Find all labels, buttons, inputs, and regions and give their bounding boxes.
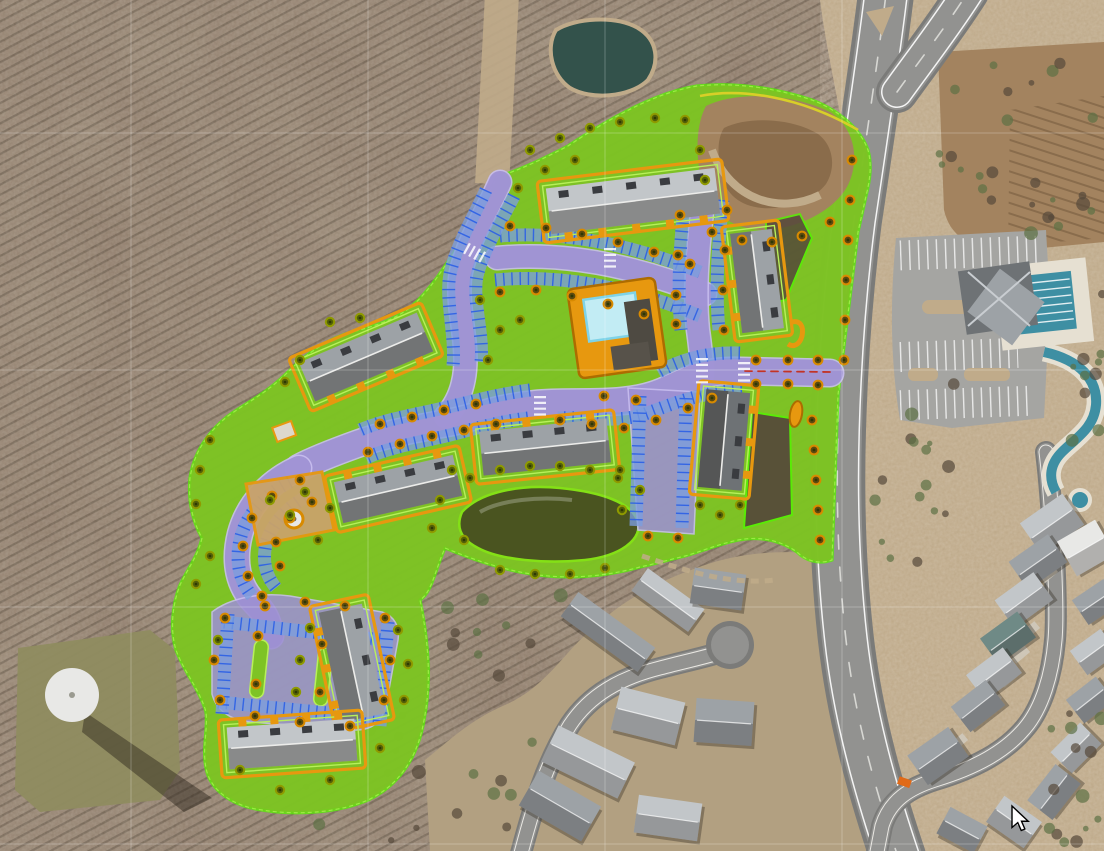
shrub bbox=[931, 507, 938, 514]
shrub bbox=[1029, 80, 1035, 86]
lawn-tree-center bbox=[739, 504, 742, 507]
street-tree-center bbox=[591, 423, 594, 426]
shrub bbox=[939, 161, 946, 168]
shrub bbox=[505, 789, 517, 801]
entry-stoop bbox=[330, 700, 339, 709]
lawn-tree-center bbox=[304, 491, 307, 494]
entry-stoop bbox=[699, 215, 708, 224]
lawn-tree-center bbox=[559, 137, 562, 140]
lawn-tree-center bbox=[469, 477, 472, 480]
shrub bbox=[1070, 364, 1076, 370]
roof-dormer bbox=[592, 186, 603, 194]
lawn-tree-center bbox=[209, 439, 212, 442]
lawn-tree-center bbox=[534, 573, 537, 576]
street-tree-center bbox=[257, 635, 260, 638]
roof-dormer bbox=[737, 403, 745, 414]
street-tree-center bbox=[255, 683, 258, 686]
street-tree-center bbox=[675, 294, 678, 297]
shrub bbox=[527, 738, 536, 747]
lawn-tree-center bbox=[269, 499, 272, 502]
shrub bbox=[493, 669, 505, 681]
street-tree-center bbox=[844, 319, 847, 322]
lawn-tree-center bbox=[617, 477, 620, 480]
lawn-tree-center bbox=[544, 169, 547, 172]
street-tree-center bbox=[655, 419, 658, 422]
street-tree-center bbox=[829, 221, 832, 224]
shrub bbox=[447, 638, 460, 651]
roof-dormer bbox=[770, 307, 778, 318]
shrub bbox=[1088, 113, 1098, 123]
roof-dormer bbox=[490, 434, 501, 442]
street-tree-center bbox=[817, 509, 820, 512]
street-tree-center bbox=[463, 429, 466, 432]
street-tree-center bbox=[431, 435, 434, 438]
entry-stoop bbox=[270, 716, 279, 725]
shrub bbox=[958, 167, 964, 173]
lawn-tree-center bbox=[719, 514, 722, 517]
shrub bbox=[488, 787, 501, 800]
lawn-tree-center bbox=[329, 321, 332, 324]
shrub bbox=[412, 765, 426, 779]
lawn-tree-center bbox=[619, 121, 622, 124]
shrub bbox=[879, 539, 885, 545]
shrub bbox=[905, 407, 918, 420]
lawn-tree-center bbox=[589, 127, 592, 130]
lawn-tree-center bbox=[621, 509, 624, 512]
shrub bbox=[1094, 816, 1101, 823]
shrub bbox=[502, 822, 511, 831]
street-tree-center bbox=[384, 617, 387, 620]
shrub bbox=[452, 808, 463, 819]
street-tree-center bbox=[643, 313, 646, 316]
shrub bbox=[1048, 784, 1059, 795]
shrub bbox=[502, 621, 510, 629]
roof-dormer bbox=[238, 730, 248, 738]
lawn-tree-center bbox=[574, 159, 577, 162]
street-tree-center bbox=[687, 407, 690, 410]
shrub bbox=[1076, 789, 1090, 803]
roof-dormer bbox=[302, 726, 312, 734]
lawn-tree-center bbox=[329, 507, 332, 510]
lawn-tree-center bbox=[479, 299, 482, 302]
lawn-tree-center bbox=[299, 659, 302, 662]
shrub bbox=[936, 150, 943, 157]
lawn-tree-center bbox=[499, 329, 502, 332]
lawn-tree-center bbox=[529, 149, 532, 152]
shrub bbox=[990, 61, 998, 69]
lawn-tree-center bbox=[699, 149, 702, 152]
shrub bbox=[1066, 710, 1073, 717]
parking-stalls bbox=[717, 200, 723, 330]
street-tree-center bbox=[389, 659, 392, 662]
shrub bbox=[909, 437, 919, 447]
shrub bbox=[1080, 371, 1090, 381]
street-tree-center bbox=[653, 251, 656, 254]
street-tree-center bbox=[851, 159, 854, 162]
lawn-tree-center bbox=[499, 569, 502, 572]
lawn-tree-center bbox=[519, 319, 522, 322]
shrub bbox=[942, 460, 955, 473]
shrub bbox=[1070, 835, 1083, 848]
street-tree-center bbox=[559, 419, 562, 422]
shrub bbox=[987, 195, 996, 204]
shrub bbox=[1076, 197, 1090, 211]
shrub bbox=[525, 638, 535, 648]
lawn-tree-center bbox=[403, 699, 406, 702]
shrub bbox=[1071, 743, 1081, 753]
lawn-tree-center bbox=[517, 187, 520, 190]
parking-stalls bbox=[636, 396, 640, 526]
street-tree-center bbox=[443, 409, 446, 412]
shrub bbox=[950, 85, 960, 95]
street-tree-center bbox=[311, 501, 314, 504]
street-tree-center bbox=[581, 233, 584, 236]
lawn-tree-center bbox=[589, 469, 592, 472]
entry-stoop bbox=[598, 227, 607, 236]
shrub bbox=[554, 588, 568, 602]
shrub bbox=[1029, 202, 1035, 208]
shrub bbox=[1077, 353, 1089, 365]
shrub bbox=[878, 475, 887, 484]
street-tree-center bbox=[817, 384, 820, 387]
street-tree-center bbox=[242, 545, 245, 548]
street-tree-center bbox=[254, 715, 257, 718]
street-tree-center bbox=[677, 254, 680, 257]
street-tree-center bbox=[647, 535, 650, 538]
roof-dormer bbox=[735, 436, 743, 447]
shrub bbox=[976, 172, 984, 180]
lawn-tree-center bbox=[684, 119, 687, 122]
lawn-tree-center bbox=[284, 381, 287, 384]
lawn-tree-center bbox=[569, 573, 572, 576]
lawn-tree-center bbox=[407, 663, 410, 666]
roof-dormer bbox=[558, 190, 569, 198]
shrub bbox=[887, 554, 895, 562]
lawn-tree-center bbox=[317, 539, 320, 542]
lawn-tree-center bbox=[699, 504, 702, 507]
lawn-tree-center bbox=[289, 514, 292, 517]
entry-stoop bbox=[743, 470, 752, 479]
map-viewport[interactable] bbox=[0, 0, 1104, 851]
street-tree-center bbox=[475, 403, 478, 406]
lawn-tree-center bbox=[559, 465, 562, 468]
lawn-tree-center bbox=[397, 629, 400, 632]
aerial-map-canvas[interactable] bbox=[0, 0, 1104, 851]
entry-stoop bbox=[748, 405, 757, 414]
lawn-tree-center bbox=[295, 691, 298, 694]
lawn-tree-center bbox=[529, 465, 532, 468]
shrub bbox=[912, 557, 922, 567]
lawn-tree-center bbox=[654, 117, 657, 120]
street-tree-center bbox=[607, 303, 610, 306]
lawn-tree-center bbox=[195, 503, 198, 506]
street-tree-center bbox=[623, 427, 626, 430]
street-tree-center bbox=[726, 209, 729, 212]
lawn-tree-center bbox=[704, 179, 707, 182]
street-tree-center bbox=[545, 227, 548, 230]
street-tree-center bbox=[811, 419, 814, 422]
street-tree-center bbox=[787, 383, 790, 386]
street-tree-center bbox=[847, 239, 850, 242]
entry-stoop bbox=[314, 627, 323, 636]
street-tree-center bbox=[304, 601, 307, 604]
street-tree-center bbox=[819, 539, 822, 542]
lawn-tree-center bbox=[309, 627, 312, 630]
street-tree-center bbox=[321, 643, 324, 646]
shrub bbox=[915, 492, 925, 502]
entry-stoop bbox=[334, 711, 343, 720]
shrub bbox=[388, 837, 394, 843]
shrub bbox=[1042, 211, 1054, 223]
street-tree-center bbox=[275, 541, 278, 544]
entry-stoop bbox=[728, 280, 737, 289]
shrub bbox=[441, 601, 454, 614]
lawn-tree-center bbox=[279, 789, 282, 792]
street-tree-center bbox=[383, 699, 386, 702]
shrub bbox=[1083, 826, 1089, 832]
entry-stoop bbox=[522, 418, 531, 427]
house bbox=[693, 698, 757, 749]
street-tree-center bbox=[251, 517, 254, 520]
shrub bbox=[1048, 725, 1056, 733]
shrub bbox=[413, 825, 419, 831]
street-tree-center bbox=[741, 239, 744, 242]
lawn-tree-center bbox=[639, 489, 642, 492]
entry-stoop bbox=[238, 718, 247, 727]
existing-pond-north bbox=[551, 20, 656, 96]
street-tree-center bbox=[349, 725, 352, 728]
street-tree-center bbox=[755, 383, 758, 386]
shrub bbox=[1092, 424, 1104, 436]
culdesac-bulb bbox=[711, 626, 749, 664]
street-tree-center bbox=[617, 241, 620, 244]
lawn-tree-center bbox=[499, 469, 502, 472]
shrub bbox=[948, 378, 960, 390]
street-tree-center bbox=[711, 231, 714, 234]
shrub bbox=[476, 593, 489, 606]
roof-dormer bbox=[626, 182, 637, 190]
parking-stripes-row bbox=[898, 338, 1019, 372]
shrub bbox=[1002, 114, 1013, 125]
shrub bbox=[1085, 746, 1097, 758]
roof-dormer bbox=[270, 728, 280, 736]
street-tree-center bbox=[635, 399, 638, 402]
street-tree-center bbox=[723, 329, 726, 332]
entry-stoop bbox=[746, 438, 755, 447]
lawn-tree-center bbox=[379, 747, 382, 750]
shrub bbox=[927, 441, 932, 446]
entry-stoop bbox=[632, 223, 641, 232]
lawn-tree-center bbox=[431, 527, 434, 530]
lawn-tree-center bbox=[329, 779, 332, 782]
street-tree-center bbox=[379, 423, 382, 426]
lawn-tree-center bbox=[359, 317, 362, 320]
water-tower-vent bbox=[69, 692, 75, 698]
shrub bbox=[1044, 823, 1055, 834]
shrub bbox=[1054, 58, 1065, 69]
street-tree-center bbox=[675, 323, 678, 326]
lawn-tree-center bbox=[451, 469, 454, 472]
street-tree-center bbox=[677, 537, 680, 540]
street-tree-center bbox=[755, 359, 758, 362]
shrub bbox=[869, 494, 880, 505]
street-tree-center bbox=[724, 249, 727, 252]
street-tree-center bbox=[219, 699, 222, 702]
shrub bbox=[469, 769, 479, 779]
street-tree-center bbox=[815, 479, 818, 482]
lawn-tree-center bbox=[487, 359, 490, 362]
lawn-tree-center bbox=[619, 469, 622, 472]
entry-stoop bbox=[732, 313, 741, 322]
shrub bbox=[1066, 434, 1079, 447]
roof-dormer bbox=[554, 427, 565, 435]
shrub bbox=[1054, 222, 1063, 231]
lawn-tree-center bbox=[209, 555, 212, 558]
shrub bbox=[1080, 388, 1091, 399]
street-tree-center bbox=[689, 263, 692, 266]
street-tree-center bbox=[787, 359, 790, 362]
shrub bbox=[1050, 197, 1055, 202]
shrub bbox=[921, 480, 932, 491]
street-tree-center bbox=[679, 214, 682, 217]
entry-stoop bbox=[564, 232, 573, 241]
shrub bbox=[1065, 722, 1077, 734]
entry-stoop bbox=[322, 664, 331, 673]
lawn-tree-center bbox=[195, 583, 198, 586]
street-tree-center bbox=[261, 595, 264, 598]
shrub bbox=[474, 650, 482, 658]
street-tree-center bbox=[817, 359, 820, 362]
roof-dormer bbox=[334, 723, 344, 731]
shrub bbox=[978, 184, 987, 193]
street-tree-center bbox=[801, 235, 804, 238]
street-tree-center bbox=[213, 659, 216, 662]
shrub bbox=[986, 166, 998, 178]
street-tree-center bbox=[849, 199, 852, 202]
street-tree-center bbox=[319, 691, 322, 694]
street-tree-center bbox=[813, 449, 816, 452]
lawn-tree-center bbox=[299, 359, 302, 362]
shrub bbox=[473, 628, 481, 636]
street-tree-center bbox=[495, 423, 498, 426]
shrub bbox=[1024, 226, 1038, 240]
street-tree-center bbox=[411, 416, 414, 419]
street-tree-center bbox=[299, 721, 302, 724]
shrub bbox=[450, 628, 459, 637]
shrub bbox=[946, 151, 957, 162]
roof-dormer bbox=[732, 469, 740, 480]
lawn-tree-center bbox=[199, 469, 202, 472]
street-tree-center bbox=[299, 479, 302, 482]
street-tree-center bbox=[571, 295, 574, 298]
street-tree-center bbox=[279, 565, 282, 568]
street-tree-center bbox=[711, 397, 714, 400]
shrub bbox=[1030, 178, 1040, 188]
street-tree-center bbox=[771, 241, 774, 244]
lawn-tree-center bbox=[239, 769, 242, 772]
street-tree-center bbox=[722, 289, 725, 292]
shrub bbox=[1059, 837, 1069, 847]
roof-dormer bbox=[766, 274, 774, 285]
street-tree-center bbox=[499, 291, 502, 294]
street-tree-center bbox=[845, 279, 848, 282]
dog-park bbox=[246, 472, 334, 545]
entry-stoop bbox=[666, 219, 675, 228]
street-tree-center bbox=[843, 359, 846, 362]
street-tree-center bbox=[509, 225, 512, 228]
shrub bbox=[1003, 87, 1012, 96]
shrub bbox=[921, 445, 931, 455]
street-tree-center bbox=[247, 575, 250, 578]
parking-stripes-row bbox=[900, 386, 1031, 421]
parking-stalls bbox=[682, 398, 686, 528]
shrub bbox=[313, 818, 325, 830]
roof-dormer bbox=[522, 430, 533, 438]
lawn-tree-center bbox=[463, 539, 466, 542]
shrub bbox=[942, 510, 949, 517]
shrub bbox=[495, 775, 507, 787]
lawn-tree-center bbox=[217, 639, 220, 642]
roof-dormer bbox=[659, 177, 670, 185]
street-tree-center bbox=[224, 617, 227, 620]
lawn-tree-center bbox=[439, 499, 442, 502]
shrub bbox=[1095, 358, 1102, 365]
street-tree-center bbox=[399, 443, 402, 446]
street-tree-center bbox=[535, 289, 538, 292]
